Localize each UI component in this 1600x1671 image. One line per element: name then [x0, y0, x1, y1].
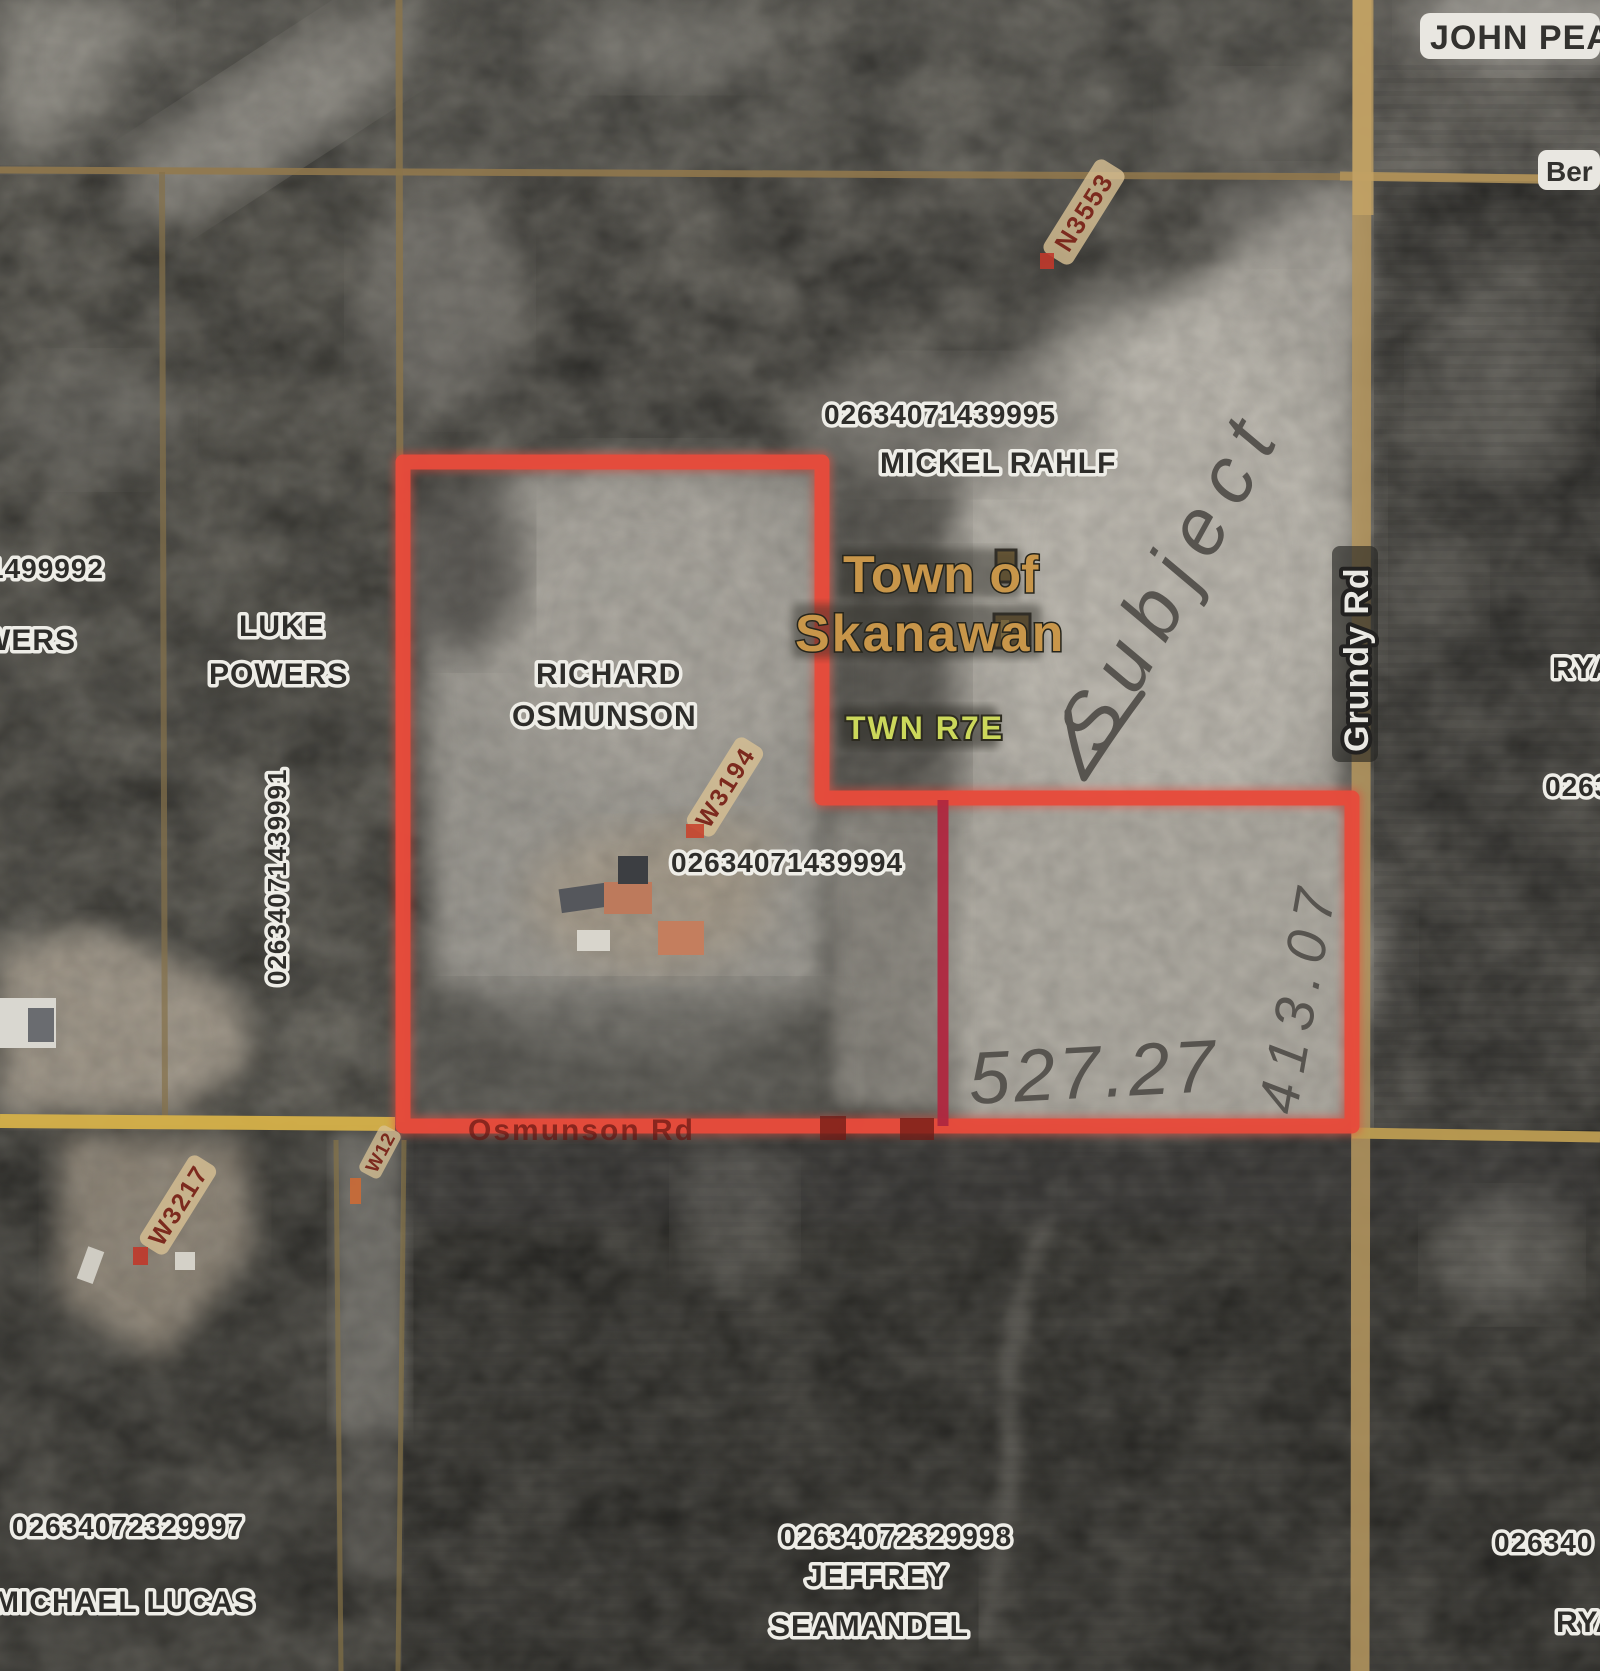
svg-text:527.27: 527.27 [966, 1024, 1220, 1120]
svg-text:JEFFREY: JEFFREY [806, 1560, 948, 1593]
svg-text:Ber: Ber [1546, 156, 1593, 187]
svg-text:RYA: RYA [1552, 652, 1600, 685]
svg-text:Town of: Town of [843, 546, 1039, 604]
svg-text:02634072329998: 02634072329998 [780, 1521, 1012, 1552]
svg-text:Osmunson Rd: Osmunson Rd [468, 1114, 695, 1147]
svg-text:02634071439995: 02634071439995 [824, 399, 1056, 430]
svg-text:SEAMANDEL: SEAMANDEL [770, 1610, 969, 1643]
svg-text:0263: 0263 [1545, 771, 1600, 802]
svg-text:02634072329997: 02634072329997 [12, 1511, 244, 1542]
svg-text:OSMUNSON: OSMUNSON [512, 700, 697, 733]
svg-text:02634071439994: 02634071439994 [671, 847, 903, 878]
svg-text:RICHARD: RICHARD [536, 658, 681, 691]
svg-text:LUKE: LUKE [239, 610, 325, 643]
svg-text:TWN R7E: TWN R7E [846, 710, 1004, 746]
svg-text:1499992: 1499992 [0, 553, 104, 584]
svg-text:RYA: RYA [1556, 1606, 1600, 1639]
svg-text:MICKEL RAHLF: MICKEL RAHLF [880, 447, 1116, 480]
svg-text:02634071439991: 02634071439991 [262, 769, 292, 985]
svg-text:Grundy Rd: Grundy Rd [1338, 567, 1376, 752]
svg-text:JOHN PEAR: JOHN PEAR [1430, 19, 1600, 57]
svg-text:026340: 026340 [1494, 1527, 1593, 1558]
svg-text:MICHAEL LUCAS: MICHAEL LUCAS [0, 1586, 255, 1619]
svg-text:WERS: WERS [0, 624, 76, 657]
svg-text:POWERS: POWERS [209, 658, 348, 691]
svg-text:Skanawan: Skanawan [795, 605, 1065, 663]
